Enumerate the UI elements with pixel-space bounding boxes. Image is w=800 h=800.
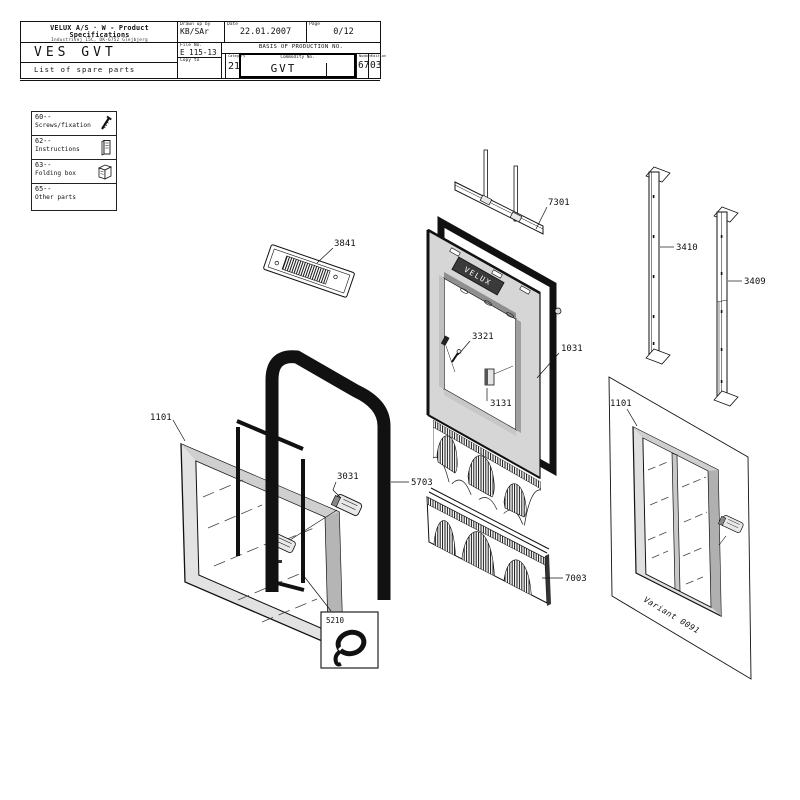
part-label-3321: 3321	[472, 332, 494, 342]
part-label-3409: 3409	[744, 277, 766, 287]
part-label-1101-left: 1101	[150, 413, 172, 423]
part-label-5703: 5703	[411, 478, 433, 488]
side-rail-left-part: 3410	[646, 167, 698, 364]
part-label-3841: 3841	[334, 239, 356, 249]
variant-group: 1101 Variant 0091	[609, 377, 751, 679]
sash-part: 1101	[150, 413, 343, 650]
part-label-3131: 3131	[490, 399, 512, 409]
part-label-1101-variant: 1101	[610, 399, 632, 409]
exploded-view-diagram: 3841 7301 3410	[0, 0, 800, 800]
frame-knob	[555, 308, 561, 314]
part-label-7301: 7301	[548, 198, 570, 208]
part-label-7003: 7003	[565, 574, 587, 584]
part-label-1031: 1031	[561, 344, 583, 354]
spare-parts-drawing-page: VELUX A/S · W - Product Specifications I…	[0, 0, 800, 800]
vent-plate-part: 3841	[263, 239, 356, 298]
pin-part: 3321	[441, 332, 494, 372]
part-label-5210: 5210	[326, 616, 345, 625]
part-label-3410: 3410	[676, 243, 698, 253]
bracket-part: 3131	[485, 366, 513, 409]
top-bar-part: 7301	[455, 150, 570, 234]
side-rail-right-part: 3409	[714, 207, 766, 406]
part-label-3031: 3031	[337, 472, 359, 482]
